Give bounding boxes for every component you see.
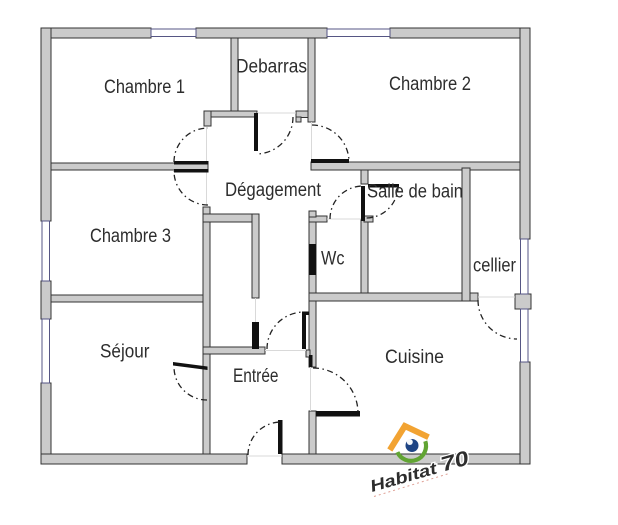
svg-text:Chambre 2: Chambre 2 — [389, 74, 471, 95]
svg-text:Cuisine: Cuisine — [385, 347, 444, 368]
svg-text:Entrée: Entrée — [233, 366, 279, 387]
svg-text:Séjour: Séjour — [100, 342, 150, 363]
svg-text:Debarras: Debarras — [236, 57, 307, 78]
svg-text:Chambre 1: Chambre 1 — [104, 77, 185, 98]
svg-text:Salle de bain: Salle de bain — [367, 182, 463, 203]
svg-text:Wc: Wc — [321, 249, 345, 270]
svg-text:cellier: cellier — [473, 256, 517, 277]
svg-text:Dégagement: Dégagement — [225, 180, 322, 201]
svg-text:Chambre 3: Chambre 3 — [90, 226, 171, 247]
